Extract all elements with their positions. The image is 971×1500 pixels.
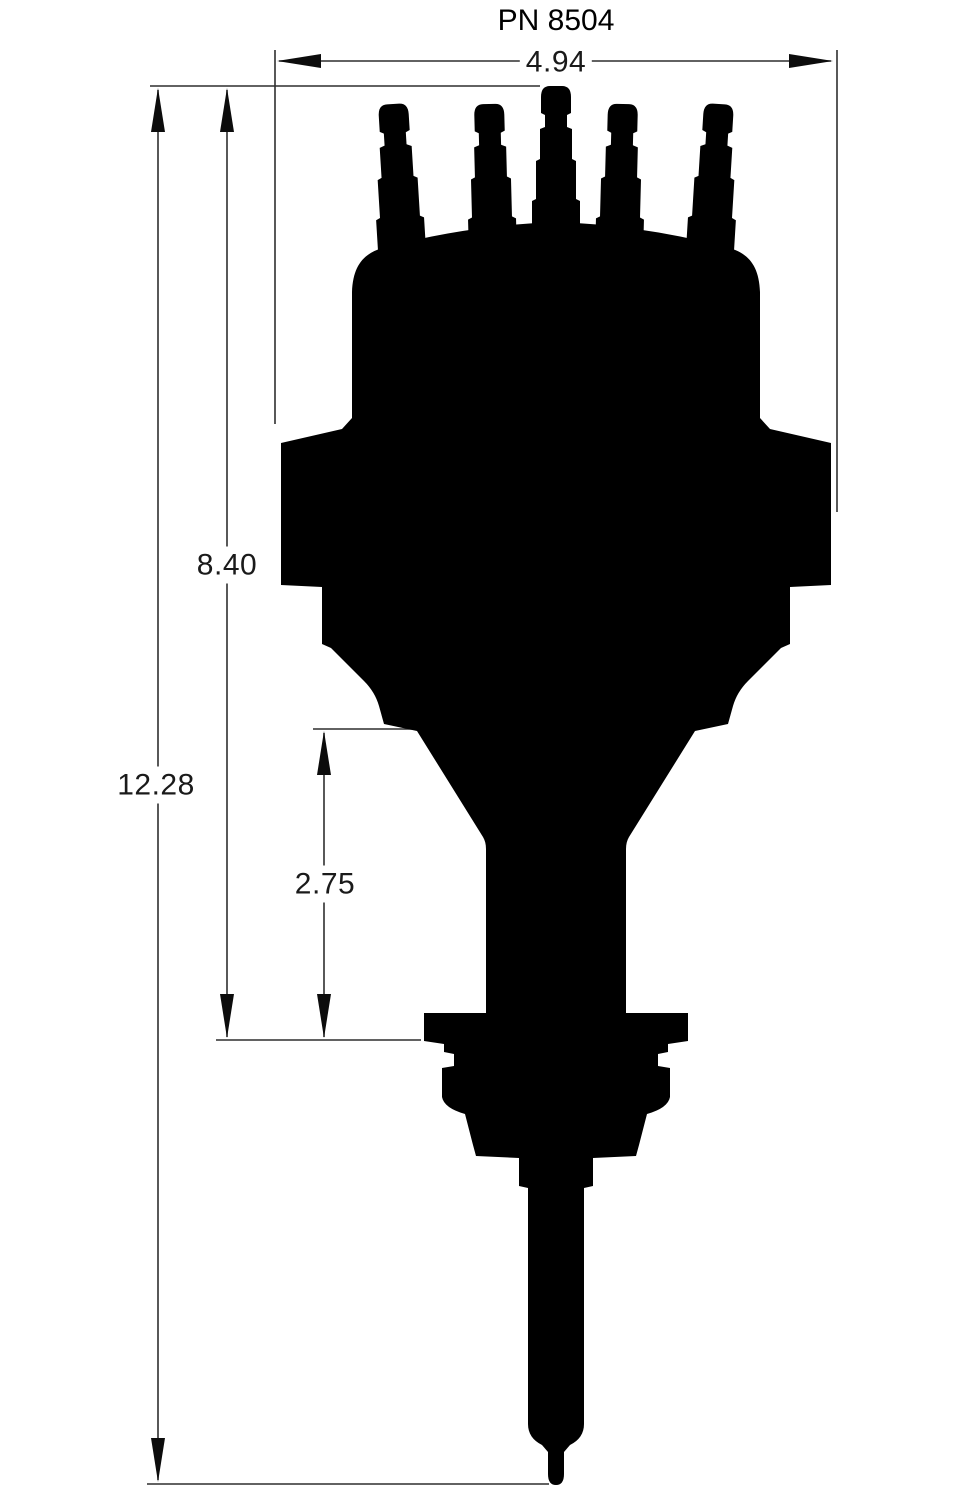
diagram-canvas: PN 8504 4.94 8.40 12.28 2.75 bbox=[0, 0, 971, 1500]
distributor-silhouette bbox=[281, 86, 831, 1485]
dim-label-body-height: 8.40 bbox=[191, 547, 263, 584]
cap-tower-4 bbox=[590, 103, 651, 308]
dim-label-lower-height: 2.75 bbox=[289, 866, 361, 903]
arrow-left-width bbox=[277, 54, 321, 68]
arrow-up-overall bbox=[151, 88, 165, 132]
arrow-down-lower bbox=[317, 994, 331, 1038]
cap-tower-center bbox=[528, 86, 584, 290]
arrow-right-width bbox=[789, 54, 833, 68]
arrow-up-lower bbox=[317, 731, 331, 775]
dimension-drawing bbox=[0, 0, 971, 1500]
distributor-body bbox=[281, 222, 831, 1485]
dim-label-cap-width: 4.94 bbox=[520, 44, 592, 81]
cap-tower-2 bbox=[461, 103, 522, 308]
dim-label-overall-height: 12.28 bbox=[111, 767, 201, 804]
arrow-down-body bbox=[220, 994, 234, 1038]
part-number-title: PN 8504 bbox=[498, 4, 615, 37]
arrow-up-body bbox=[220, 88, 234, 132]
cap-towers bbox=[365, 86, 747, 309]
arrow-down-overall bbox=[151, 1438, 165, 1482]
